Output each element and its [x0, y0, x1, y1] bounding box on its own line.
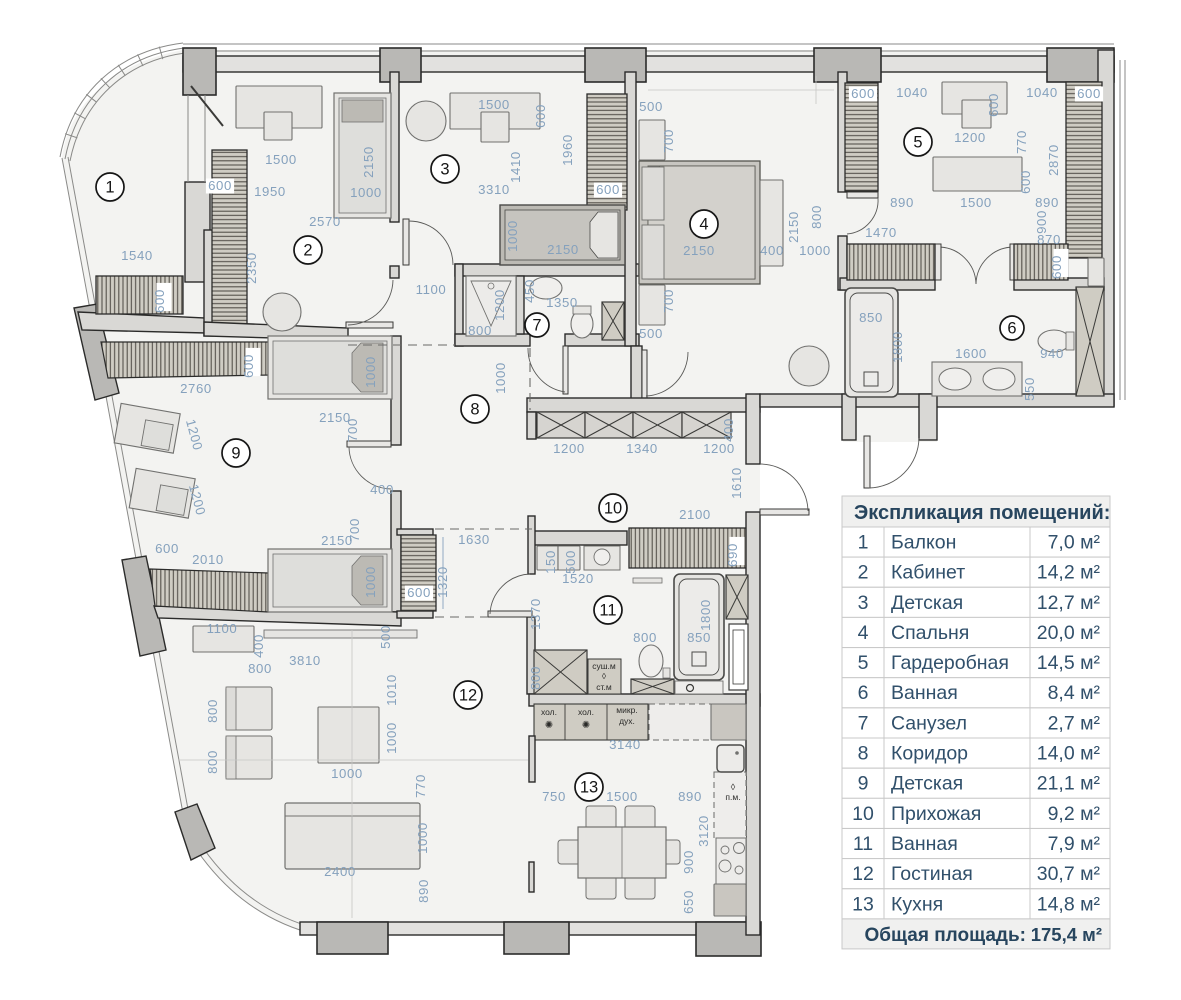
svg-text:800: 800: [468, 323, 492, 338]
svg-text:9: 9: [231, 445, 240, 463]
svg-text:150: 150: [543, 550, 558, 574]
svg-text:1500: 1500: [606, 789, 638, 804]
svg-text:800: 800: [248, 661, 272, 676]
svg-text:600: 600: [1077, 86, 1101, 101]
svg-text:Балкон: Балкон: [891, 532, 956, 554]
svg-text:1000: 1000: [799, 243, 831, 258]
svg-text:550: 550: [1022, 377, 1037, 401]
svg-text:2150: 2150: [683, 243, 715, 258]
svg-text:5: 5: [858, 652, 869, 674]
svg-text:Экспликация помещений:: Экспликация помещений:: [854, 502, 1110, 524]
svg-text:2350: 2350: [244, 252, 259, 284]
svg-text:600: 600: [241, 354, 256, 378]
svg-text:8: 8: [858, 743, 869, 765]
svg-text:4: 4: [858, 622, 869, 644]
svg-text:2: 2: [858, 562, 869, 584]
svg-text:500: 500: [639, 99, 663, 114]
svg-text:11: 11: [599, 602, 616, 620]
svg-text:800: 800: [205, 750, 220, 774]
svg-text:1100: 1100: [207, 621, 238, 636]
svg-text:1540: 1540: [121, 248, 153, 263]
svg-text:700: 700: [345, 418, 360, 442]
svg-text:1000: 1000: [350, 185, 382, 200]
svg-text:1500: 1500: [478, 97, 510, 112]
svg-text:13: 13: [580, 779, 598, 797]
svg-text:хол.: хол.: [578, 707, 594, 717]
svg-text:Кухня: Кухня: [891, 893, 943, 915]
svg-text:Гостиная: Гостиная: [891, 863, 973, 885]
svg-text:14,5 м²: 14,5 м²: [1037, 652, 1101, 674]
svg-text:✺: ✺: [545, 720, 553, 731]
svg-text:450: 450: [522, 279, 537, 303]
svg-text:1340: 1340: [626, 441, 658, 456]
svg-text:500: 500: [639, 326, 663, 341]
svg-text:10: 10: [604, 500, 622, 518]
svg-text:900: 900: [1034, 210, 1049, 234]
svg-text:1000: 1000: [363, 566, 378, 598]
svg-text:770: 770: [413, 774, 428, 798]
svg-text:890: 890: [890, 195, 914, 210]
svg-text:400: 400: [760, 243, 784, 258]
svg-text:14,2 м²: 14,2 м²: [1037, 562, 1101, 584]
svg-text:3: 3: [440, 161, 449, 179]
svg-text:Ванная: Ванная: [891, 682, 958, 704]
svg-text:Гардеробная: Гардеробная: [891, 652, 1009, 674]
svg-text:400: 400: [370, 482, 394, 497]
svg-text:890: 890: [678, 789, 702, 804]
svg-text:600: 600: [533, 104, 548, 128]
svg-text:Коридор: Коридор: [891, 743, 968, 765]
svg-text:940: 940: [1040, 346, 1064, 361]
svg-text:175,4 м²: 175,4 м²: [1031, 924, 1102, 945]
svg-text:9,2 м²: 9,2 м²: [1048, 803, 1101, 825]
svg-text:1200: 1200: [703, 441, 735, 456]
svg-text:3: 3: [858, 592, 869, 614]
svg-text:6: 6: [1007, 320, 1016, 338]
svg-text:400: 400: [251, 634, 266, 658]
svg-text:21,1 м²: 21,1 м²: [1037, 773, 1101, 795]
svg-text:2570: 2570: [309, 214, 341, 229]
svg-text:Детская: Детская: [891, 773, 963, 795]
svg-text:1040: 1040: [1026, 85, 1058, 100]
svg-text:7,0 м²: 7,0 м²: [1048, 532, 1101, 554]
svg-text:1520: 1520: [562, 571, 594, 586]
svg-text:2150: 2150: [786, 211, 801, 243]
svg-text:1040: 1040: [896, 85, 928, 100]
svg-text:Общая площадь:: Общая площадь:: [864, 925, 1026, 946]
svg-text:1950: 1950: [254, 184, 286, 199]
svg-text:13: 13: [852, 893, 874, 915]
svg-text:Кабинет: Кабинет: [891, 562, 965, 584]
svg-text:6: 6: [858, 682, 869, 704]
svg-text:1: 1: [858, 532, 869, 554]
svg-text:8: 8: [470, 401, 479, 419]
svg-text:12,7 м²: 12,7 м²: [1037, 592, 1101, 614]
svg-text:700: 700: [661, 129, 676, 153]
svg-text:1960: 1960: [560, 134, 575, 166]
svg-text:850: 850: [687, 630, 711, 645]
svg-text:600: 600: [208, 178, 232, 193]
svg-text:1010: 1010: [384, 674, 399, 706]
svg-text:1800: 1800: [890, 331, 905, 363]
svg-text:1000: 1000: [331, 766, 363, 781]
svg-text:2,7 м²: 2,7 м²: [1048, 712, 1101, 734]
svg-text:600: 600: [407, 585, 431, 600]
svg-text:600: 600: [152, 289, 167, 313]
svg-text:2: 2: [303, 242, 312, 260]
svg-text:7: 7: [858, 712, 869, 734]
svg-text:1100: 1100: [416, 282, 447, 297]
svg-text:1200: 1200: [492, 289, 507, 321]
svg-text:1000: 1000: [415, 822, 430, 854]
svg-text:Детская: Детская: [891, 592, 963, 614]
svg-text:14,8 м²: 14,8 м²: [1037, 893, 1101, 915]
svg-text:700: 700: [347, 518, 362, 542]
svg-text:1800: 1800: [698, 599, 713, 631]
svg-text:800: 800: [809, 205, 824, 229]
svg-text:7,9 м²: 7,9 м²: [1048, 833, 1101, 855]
svg-text:750: 750: [542, 789, 566, 804]
svg-text:микр.: микр.: [616, 705, 637, 715]
svg-text:1370: 1370: [528, 598, 543, 630]
svg-text:800: 800: [528, 666, 543, 690]
svg-text:600: 600: [1049, 255, 1064, 279]
svg-text:800: 800: [205, 699, 220, 723]
svg-text:2010: 2010: [192, 552, 224, 567]
svg-text:890: 890: [416, 879, 431, 903]
svg-text:2100: 2100: [679, 507, 711, 522]
svg-text:1630: 1630: [458, 532, 490, 547]
svg-text:400: 400: [721, 418, 736, 442]
svg-text:1610: 1610: [729, 467, 744, 499]
svg-text:3140: 3140: [609, 737, 641, 752]
svg-text:600: 600: [1018, 170, 1033, 194]
svg-text:600: 600: [851, 86, 875, 101]
svg-text:7: 7: [532, 317, 541, 335]
svg-text:4: 4: [699, 216, 708, 234]
svg-text:770: 770: [1014, 130, 1029, 154]
svg-text:2760: 2760: [180, 381, 212, 396]
svg-text:1000: 1000: [493, 362, 508, 394]
svg-text:12: 12: [852, 863, 874, 885]
svg-text:1350: 1350: [546, 295, 578, 310]
svg-text:п.м.: п.м.: [725, 792, 740, 802]
svg-text:850: 850: [859, 310, 883, 325]
svg-text:800: 800: [633, 630, 657, 645]
svg-text:1410: 1410: [508, 151, 523, 183]
svg-text:1470: 1470: [865, 225, 897, 240]
svg-text:700: 700: [661, 289, 676, 313]
svg-text:1200: 1200: [954, 130, 986, 145]
svg-text:690: 690: [725, 543, 740, 567]
svg-text:1000: 1000: [505, 220, 520, 252]
svg-text:5: 5: [913, 134, 922, 152]
svg-text:14,0 м²: 14,0 м²: [1037, 743, 1101, 765]
svg-text:30,7 м²: 30,7 м²: [1037, 863, 1101, 885]
svg-text:1500: 1500: [960, 195, 992, 210]
svg-text:10: 10: [852, 803, 874, 825]
svg-text:900: 900: [681, 850, 696, 874]
svg-text:Санузел: Санузел: [891, 712, 967, 734]
svg-text:Спальня: Спальня: [891, 622, 969, 644]
svg-text:1: 1: [105, 179, 114, 197]
svg-text:12: 12: [459, 687, 477, 705]
svg-text:600: 600: [596, 182, 620, 197]
svg-text:2150: 2150: [547, 242, 579, 257]
svg-text:870: 870: [1037, 232, 1061, 247]
svg-text:650: 650: [681, 890, 696, 914]
svg-text:1500: 1500: [265, 152, 297, 167]
svg-text:суш.м: суш.м: [592, 661, 616, 671]
svg-text:600: 600: [986, 93, 1001, 117]
svg-text:20,0 м²: 20,0 м²: [1037, 622, 1101, 644]
svg-text:1200: 1200: [553, 441, 585, 456]
svg-text:11: 11: [853, 833, 873, 855]
svg-text:9: 9: [858, 773, 869, 795]
svg-text:1320: 1320: [435, 566, 450, 598]
svg-text:дух.: дух.: [619, 716, 635, 726]
svg-text:2400: 2400: [324, 864, 356, 879]
svg-text:1000: 1000: [363, 356, 378, 388]
svg-text:8,4 м²: 8,4 м²: [1048, 682, 1101, 704]
svg-text:◊: ◊: [731, 782, 736, 792]
svg-text:хол.: хол.: [541, 707, 557, 717]
svg-text:ст.м: ст.м: [596, 682, 612, 692]
svg-text:3120: 3120: [696, 815, 711, 847]
svg-text:Ванная: Ванная: [891, 833, 958, 855]
svg-text:1600: 1600: [955, 346, 987, 361]
svg-text:600: 600: [155, 541, 179, 556]
svg-text:2150: 2150: [361, 146, 376, 178]
svg-text:✺: ✺: [582, 720, 590, 731]
svg-text:2870: 2870: [1046, 144, 1061, 176]
svg-text:Прихожая: Прихожая: [891, 803, 981, 825]
svg-text:1000: 1000: [384, 722, 399, 754]
svg-text:500: 500: [378, 625, 393, 649]
svg-text:890: 890: [1035, 195, 1059, 210]
svg-text:3810: 3810: [289, 653, 321, 668]
svg-text:3310: 3310: [478, 182, 510, 197]
